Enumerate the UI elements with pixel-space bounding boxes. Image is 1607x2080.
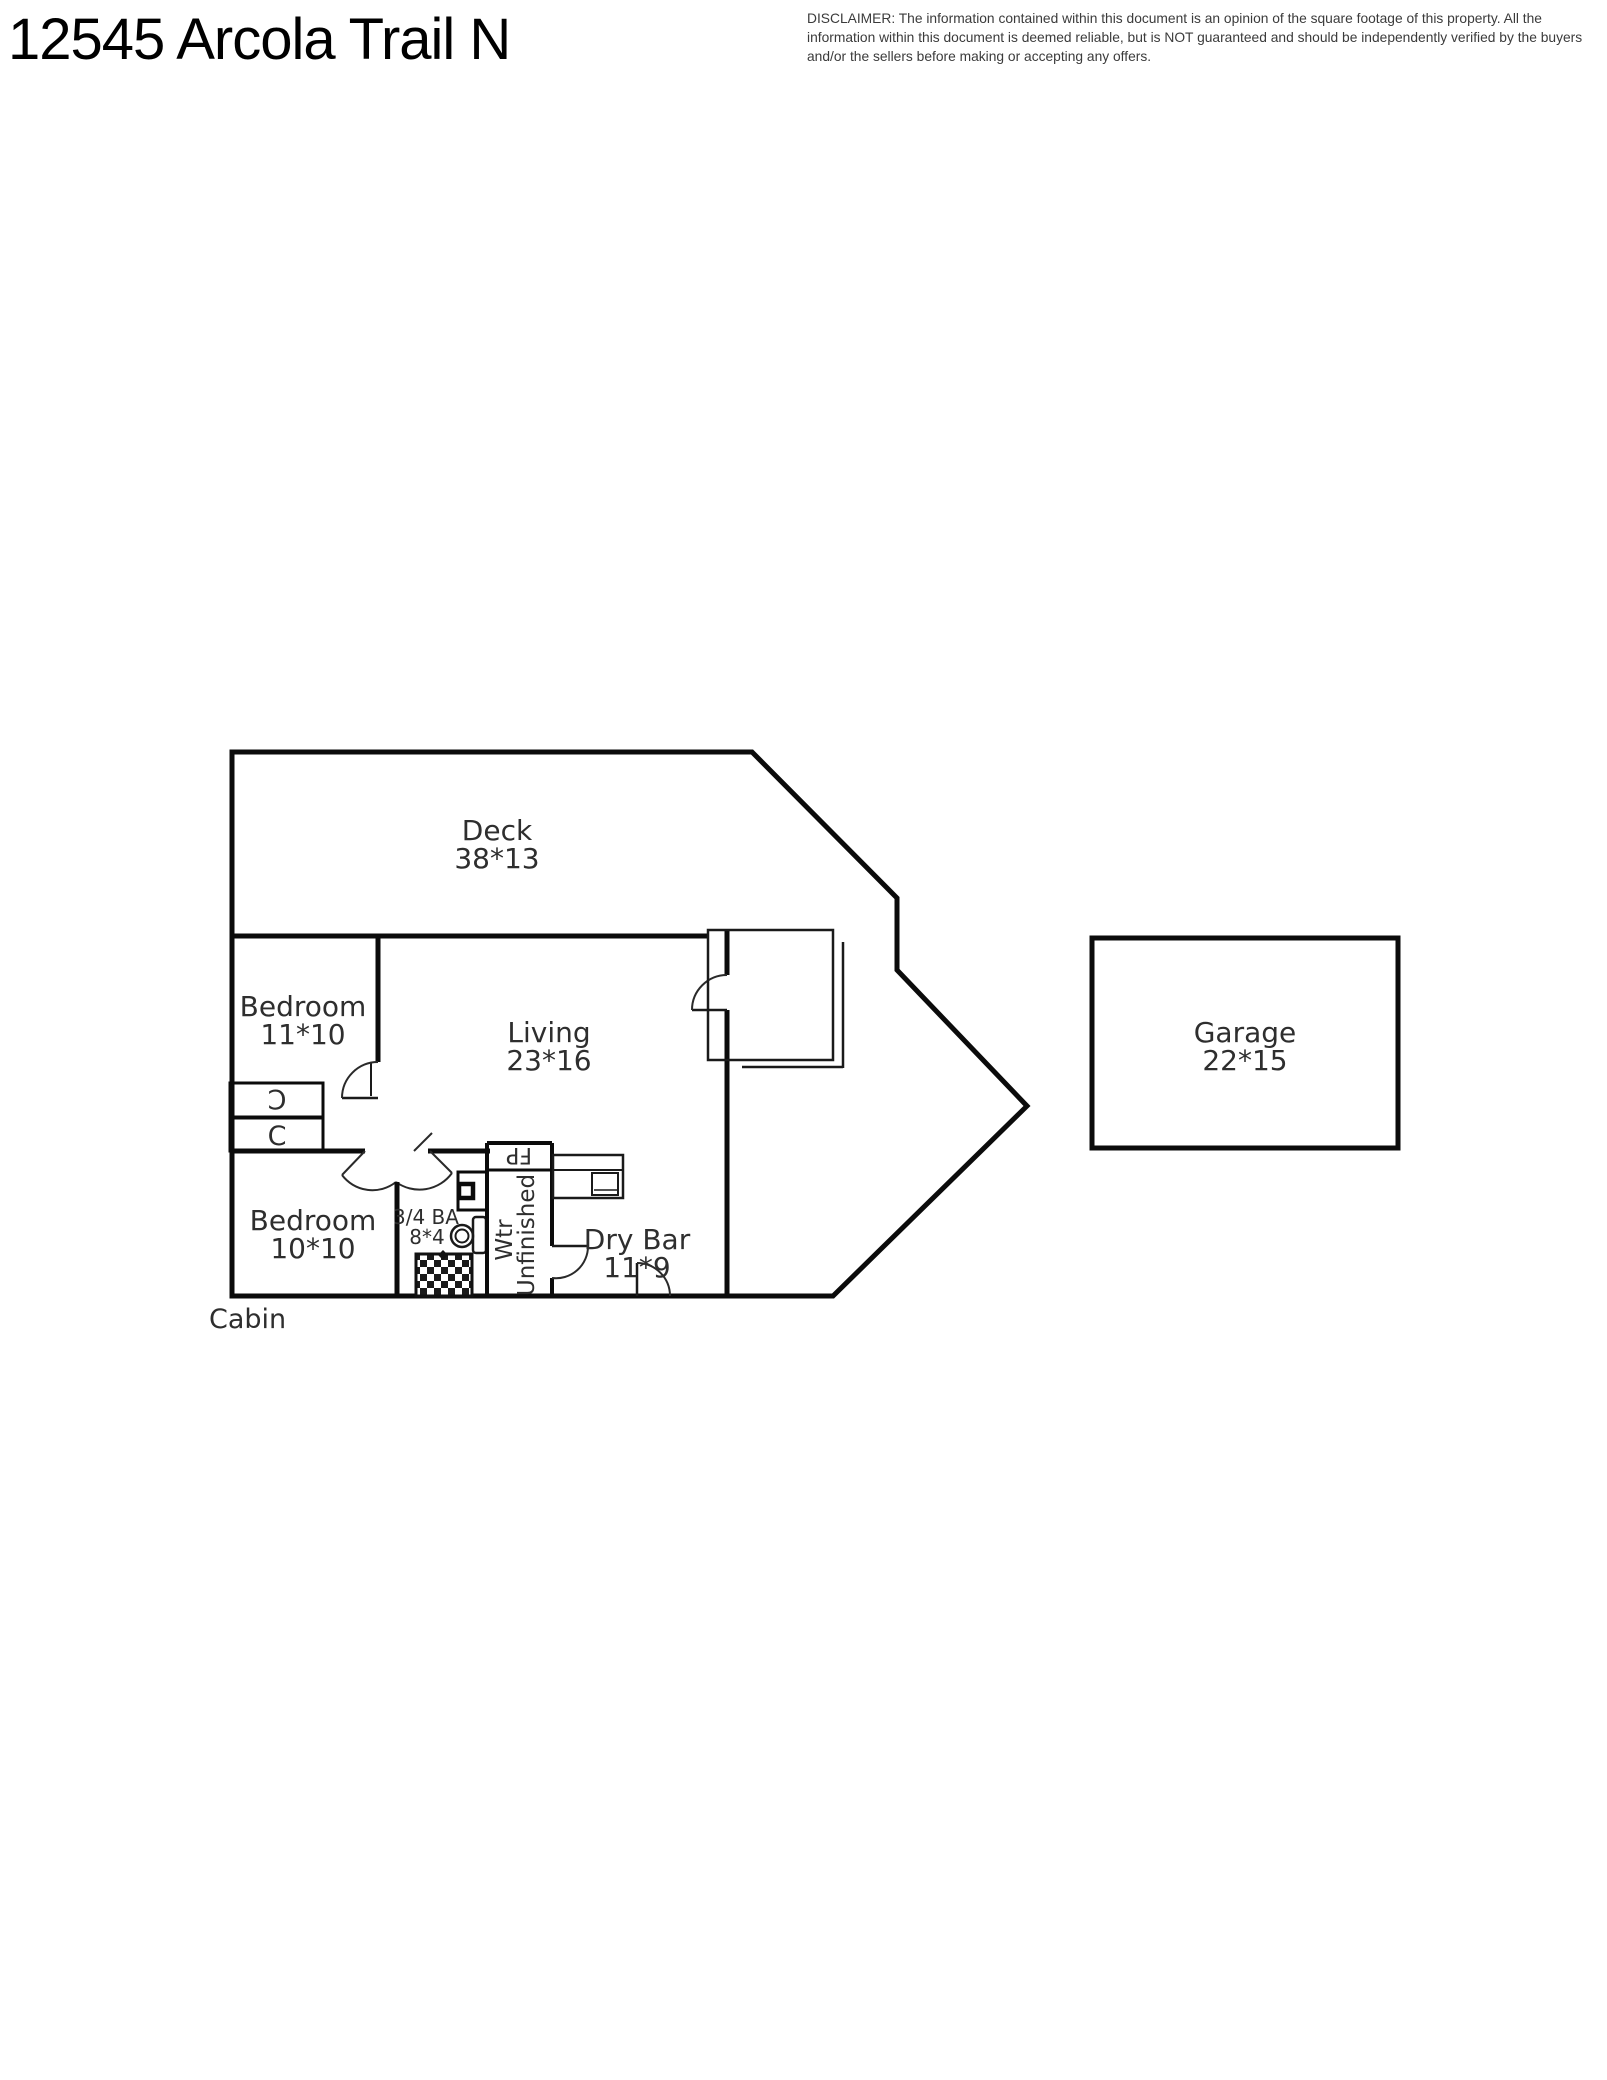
chimney-chase-post — [459, 1184, 473, 1198]
shower-pan — [416, 1254, 472, 1296]
bedroom-upper-dims: 11*10 — [260, 1018, 345, 1051]
living-door-arc — [692, 975, 727, 1010]
double-door-right-leaf — [430, 1151, 452, 1173]
drybar-dims: 11*9 — [603, 1251, 670, 1284]
double-door-right-arc — [396, 1173, 452, 1190]
toilet-tank — [473, 1217, 486, 1253]
closet-top-label: C — [268, 1083, 287, 1114]
toilet-bowl-inner — [456, 1230, 469, 1243]
building-label: Cabin — [209, 1304, 286, 1335]
drybar-counter — [553, 1155, 623, 1198]
deck-dims: 38*13 — [454, 842, 539, 875]
living-dims: 23*16 — [506, 1044, 591, 1077]
double-door-right-open-leaf — [414, 1133, 432, 1151]
closet-bottom-label: C — [268, 1121, 287, 1152]
garage-dims: 22*15 — [1202, 1044, 1287, 1077]
utility-door-arc — [552, 1246, 588, 1278]
floor-plan-drawing: Deck 38*13 Bedroom 11*10 Living 23*16 Be… — [0, 0, 1607, 2080]
double-door-left-leaf — [342, 1151, 365, 1175]
double-door-left-arc — [342, 1175, 396, 1190]
drybar-sink — [592, 1173, 618, 1195]
floor-plan-page: 12545 Arcola Trail N DISCLAIMER: The inf… — [0, 0, 1607, 2080]
fireplace-label: FP — [506, 1142, 532, 1167]
bedroom-upper-door-arc — [342, 1062, 378, 1098]
bedroom-lower-dims: 10*10 — [270, 1232, 355, 1265]
bath-dims: 8*4 — [409, 1225, 444, 1249]
water-room-label-line2: Unfinished — [514, 1174, 540, 1296]
